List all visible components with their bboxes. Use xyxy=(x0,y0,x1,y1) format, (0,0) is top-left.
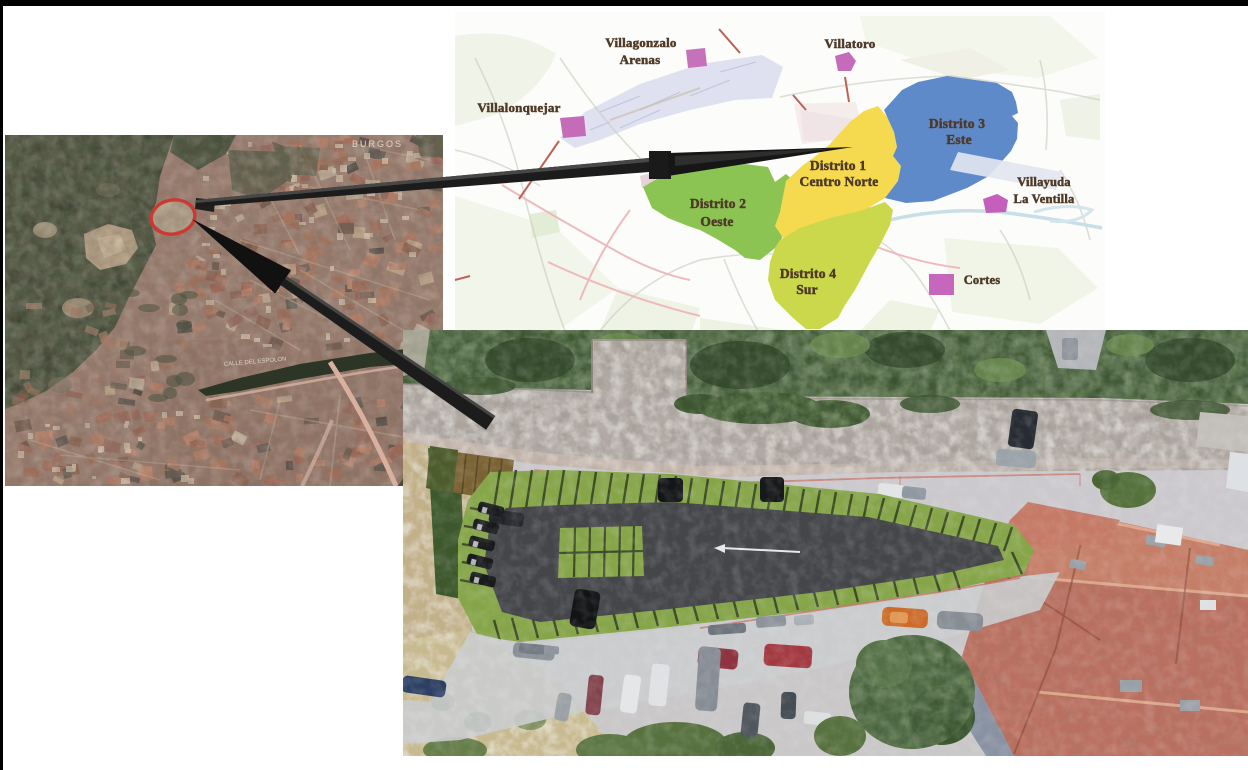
svg-text:Villatoro: Villatoro xyxy=(825,36,876,51)
svg-text:Villagonzalo: Villagonzalo xyxy=(605,35,676,50)
svg-text:Oeste: Oeste xyxy=(700,214,733,229)
svg-text:Villayuda: Villayuda xyxy=(1017,175,1071,189)
svg-text:Distrito 3: Distrito 3 xyxy=(929,116,985,131)
svg-text:Sur: Sur xyxy=(796,282,818,297)
svg-text:Cortes: Cortes xyxy=(964,273,1001,287)
svg-text:La Ventilla: La Ventilla xyxy=(1014,192,1075,206)
svg-text:Villalonquejar: Villalonquejar xyxy=(477,100,560,115)
svg-text:Distrito 2: Distrito 2 xyxy=(690,196,746,211)
svg-text:Arenas: Arenas xyxy=(620,52,661,67)
svg-text:Distrito 1: Distrito 1 xyxy=(810,158,866,173)
svg-text:Centro Norte: Centro Norte xyxy=(800,174,879,189)
svg-text:Distrito 4: Distrito 4 xyxy=(780,266,836,281)
svg-text:Este: Este xyxy=(946,132,972,147)
svg-text:BURGOS: BURGOS xyxy=(352,139,403,149)
